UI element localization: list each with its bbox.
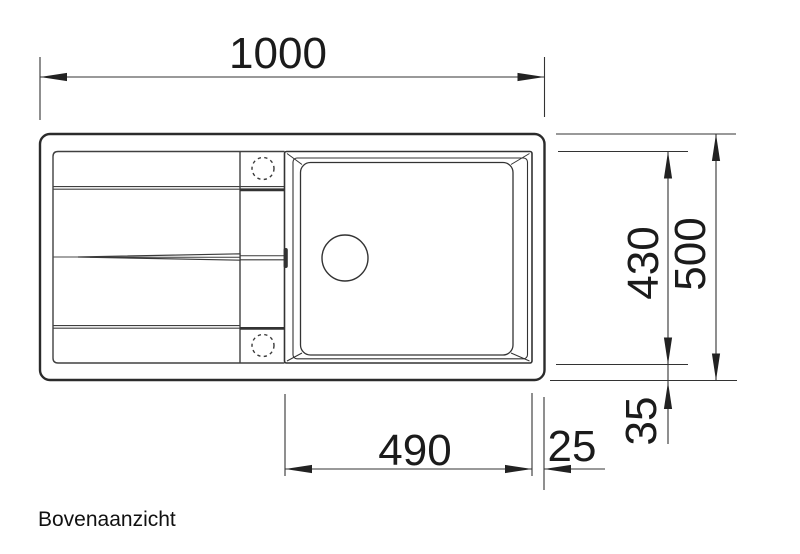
arrow-down-icon: [664, 338, 672, 365]
dim-label-overall-width: 1000: [229, 32, 327, 76]
drain-hole-icon: [322, 235, 368, 281]
dim-label-inner-depth: 430: [622, 226, 666, 299]
arrow-left-icon: [285, 465, 312, 473]
tap-hole-top-icon: [252, 158, 274, 180]
bowl: [285, 152, 533, 364]
technical-drawing: 1000 500 430 490 25 35 Bovenaanzicht: [0, 0, 800, 554]
drain-groove: [53, 248, 288, 268]
bowl-corner-bevels: [287, 154, 530, 362]
tap-holes: [252, 158, 274, 357]
view-title: Bovenaanzicht: [38, 507, 176, 532]
dim-label-right-rim: 25: [548, 425, 597, 469]
arrow-up-icon: [664, 152, 672, 179]
bowl-mid-contour: [293, 158, 528, 359]
dim-label-bowl-width: 490: [378, 429, 451, 473]
arrow-left-icon: [40, 73, 67, 81]
bowl-bottom: [301, 163, 514, 356]
arrow-right-icon: [518, 73, 545, 81]
dim-label-bottom-rim: 35: [620, 397, 664, 446]
arrow-right-icon: [505, 465, 532, 473]
arrow-down-icon: [712, 354, 720, 381]
tap-hole-bottom-icon: [252, 335, 274, 357]
arrow-up-icon: [712, 134, 720, 161]
dim-label-overall-depth: 500: [669, 217, 713, 290]
